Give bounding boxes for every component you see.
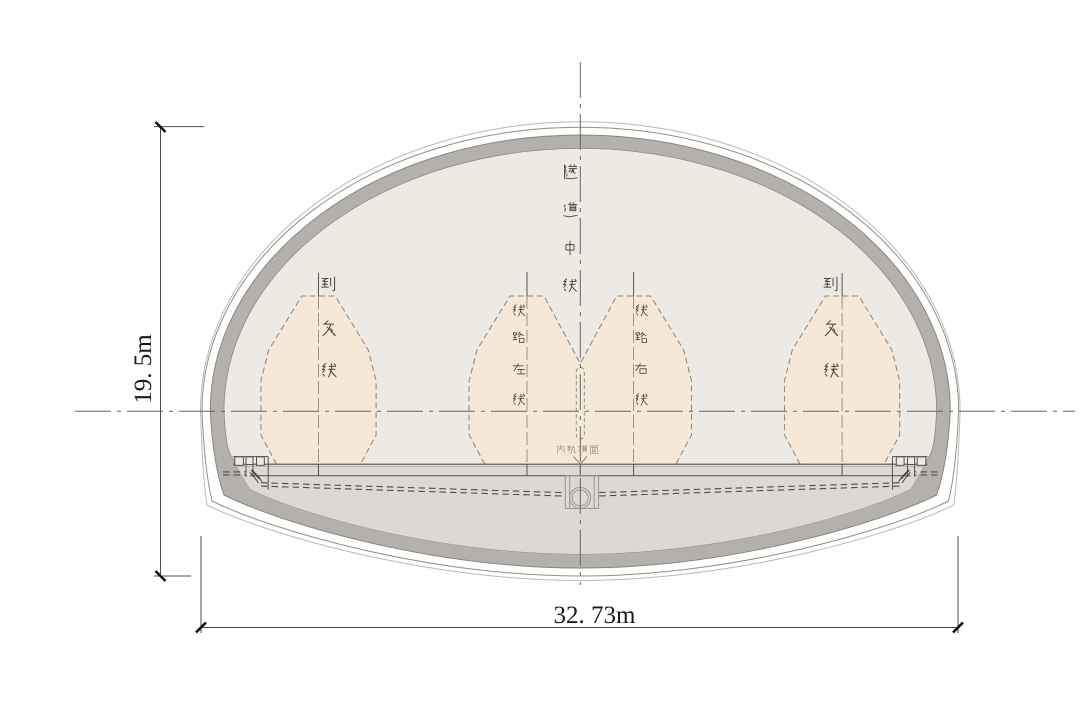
svg-text:32. 73m: 32. 73m xyxy=(554,602,637,629)
svg-text:19. 5m: 19. 5m xyxy=(130,334,157,404)
